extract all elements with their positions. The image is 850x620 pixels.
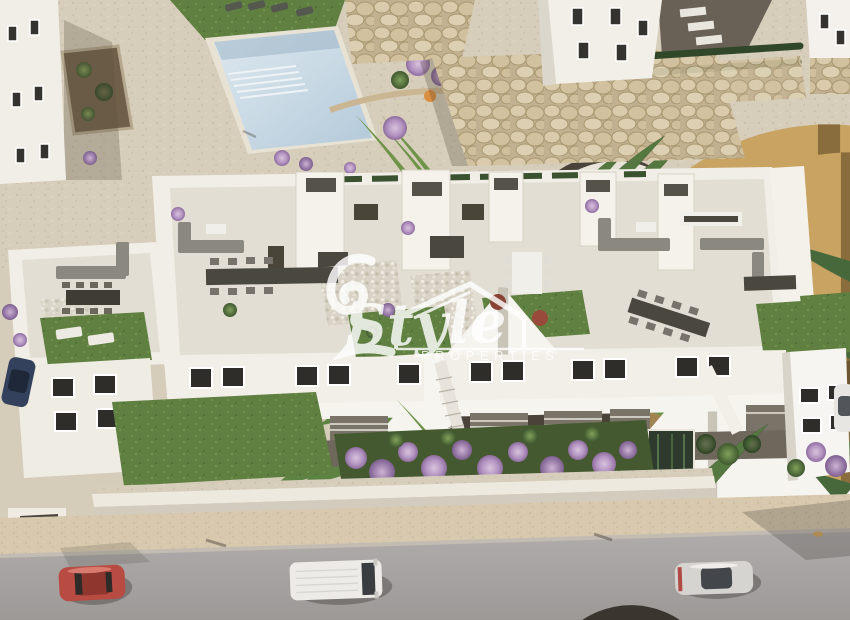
dog	[813, 531, 823, 536]
property-aerial-render: Style PROPERTIES	[0, 0, 850, 620]
neighbour-building-top	[538, 0, 662, 86]
logo-brand-subtitle: PROPERTIES	[421, 348, 560, 363]
render-canvas: Style PROPERTIES	[0, 0, 850, 620]
white-car-partial	[834, 384, 850, 432]
